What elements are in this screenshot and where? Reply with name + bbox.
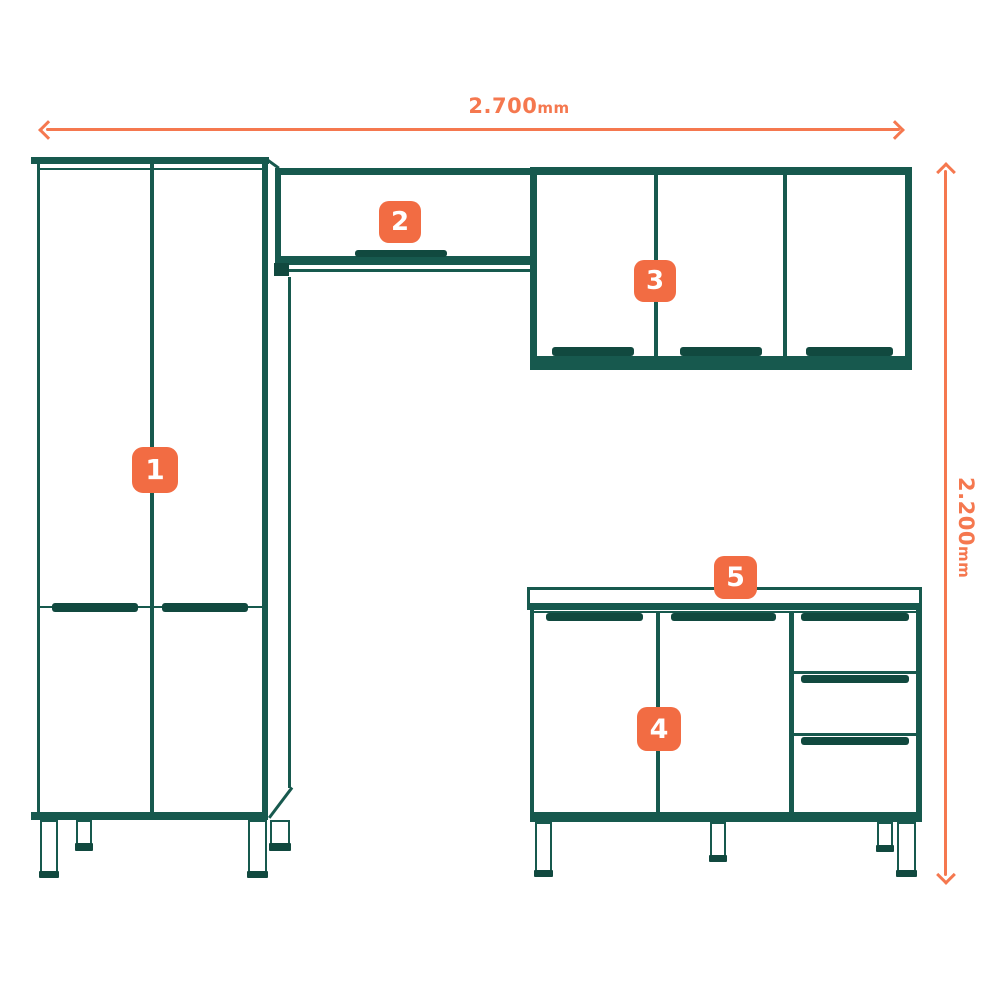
top-edge [31,157,269,164]
drawer-section-divider [789,613,794,812]
right-edge [916,610,922,817]
cabinet-dimension-diagram: 2.700mm 2.200mm 1 2 3 4 5 [0,0,1000,1000]
door-handle [680,347,762,356]
badge-number: 2 [391,209,409,235]
arrow-down-icon [936,865,956,885]
door-handle [671,613,776,621]
badge-number: 4 [650,716,669,743]
leg-foot [876,845,894,852]
leg-foot [709,855,727,862]
left-edge [530,610,534,817]
right-edge [262,157,268,819]
leg-foot [534,870,553,877]
unit-badge-5: 5 [714,556,757,599]
door-handle [552,347,634,356]
leg-foot [39,871,59,878]
badge-number: 1 [145,456,164,484]
leg-foot [75,843,93,851]
left-edge [530,167,537,370]
width-value: 2.700 [468,94,537,118]
width-dimension-label: 2.700mm [419,94,619,118]
arrow-right-icon [885,120,905,140]
top-edge [530,167,912,175]
bottom-edge [530,356,912,370]
leg [40,820,58,877]
unit-badge-4: 4 [637,707,681,751]
top-edge [275,168,535,175]
height-arrow-line [944,170,947,876]
door-handle [52,603,138,612]
unit-badge-1: 1 [132,447,178,493]
leg [535,822,552,877]
drawer-handle [801,613,909,621]
bottom-edge [275,256,535,265]
badge-number: 3 [646,268,664,294]
unit-badge-3: 3 [634,260,676,302]
left-edge [275,168,281,268]
side-bottom-bevel [268,787,293,819]
height-unit: mm [955,546,973,578]
height-value: 2.200 [954,477,978,546]
bottom-rail [31,812,268,820]
door-handle [355,250,447,257]
badge-number: 5 [726,564,745,591]
door-handle [806,347,893,356]
door-handle [546,613,643,621]
arrow-left-icon [38,120,58,140]
drawer-divider-line [794,733,916,736]
countertop-front-edge [527,604,922,610]
left-edge [37,157,40,820]
corner-foot [274,263,289,276]
arrow-up-icon [936,162,956,182]
bottom-shelf-line [287,269,535,272]
right-edge [905,167,912,370]
unit-badge-2: 2 [379,201,421,243]
leg [897,822,916,877]
height-dimension-label: 2.200mm [954,477,978,607]
leg-foot [247,871,268,878]
drawer-divider-line [794,671,916,674]
leg [248,820,267,877]
leg-foot [896,870,917,877]
bottom-rail [530,812,922,822]
drawer-handle [801,737,909,745]
width-unit: mm [537,99,569,117]
drawer-handle [801,675,909,683]
door-divider [783,175,787,356]
side-panel-line [288,277,291,788]
width-arrow-line [46,128,900,131]
door-handle [162,603,248,612]
leg-foot [269,843,291,851]
